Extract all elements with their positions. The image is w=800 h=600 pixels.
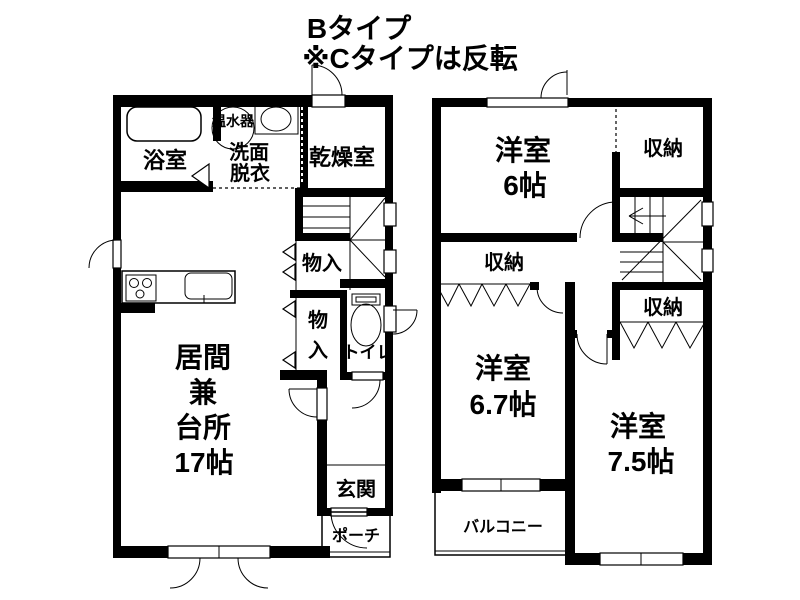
label-closet-upper: 物入	[302, 251, 342, 275]
toilet-icon	[351, 294, 381, 346]
title-type: Bタイプ	[307, 13, 412, 44]
kitchen-counter-icon	[122, 271, 235, 303]
toilet-door	[352, 372, 383, 408]
label-living-4: 17帖	[174, 447, 233, 478]
label-washroom-2: 脱衣	[230, 161, 270, 185]
staircase-1f	[300, 197, 385, 290]
label-room67-1: 洋室	[475, 352, 531, 384]
label-bathroom: 浴室	[143, 148, 187, 173]
label-closet-lower-2: 入	[308, 339, 328, 362]
label-room6-2: 6帖	[503, 170, 547, 201]
label-room75-2: 7.5帖	[608, 446, 675, 477]
floor2-top-door	[487, 70, 568, 107]
label-closet-mid: 収納	[484, 250, 524, 274]
floorplan-drawing: Bタイプ ※Cタイプは反転	[0, 0, 800, 600]
floorplan-page: Bタイプ ※Cタイプは反転	[0, 0, 800, 600]
label-living-1: 居間	[175, 342, 231, 373]
floor2-walls	[432, 98, 712, 565]
bathtub-icon	[127, 107, 201, 141]
label-entrance: 玄関	[336, 477, 376, 501]
label-closet-right: 収納	[643, 295, 683, 319]
title-block: Bタイプ ※Cタイプは反転	[302, 13, 517, 74]
french-doors	[168, 546, 270, 588]
closet-right-bifold	[620, 322, 705, 348]
label-porch: ポーチ	[332, 526, 380, 545]
label-living-2: 兼	[189, 377, 217, 408]
kitchen-side-door	[89, 240, 121, 268]
floor1-plan: 浴室 温水器 洗面 脱衣 乾燥室 物入 物 入 トイレ 居間 兼 台所 17帖 …	[89, 65, 417, 588]
label-closet-lower-1: 物	[308, 308, 328, 332]
room75-door	[577, 334, 607, 364]
hall-door	[289, 388, 327, 420]
label-living-3: 台所	[175, 411, 231, 443]
floor1-windows	[384, 203, 417, 334]
label-toilet: トイレ	[343, 343, 394, 362]
closet-door-icons	[283, 241, 296, 372]
label-closet-top: 収納	[643, 136, 683, 160]
label-room6-1: 洋室	[495, 134, 551, 166]
room6-door	[580, 202, 616, 238]
floor2-plan: 洋室 6帖 収納 収納 収納 洋室 6.7帖 洋室 7.5帖 バルコニー	[432, 70, 713, 565]
label-washroom-1: 洗面	[229, 141, 269, 164]
label-room75-1: 洋室	[610, 410, 666, 442]
label-room67-2: 6.7帖	[470, 389, 537, 420]
label-balcony: バルコニー	[463, 518, 543, 536]
room67-door	[537, 287, 563, 313]
title-note: ※Cタイプは反転	[302, 43, 517, 74]
label-drying-room: 乾燥室	[309, 145, 375, 170]
label-water-heater: 温水器	[212, 113, 255, 129]
closet-mid-bifold	[436, 284, 530, 306]
